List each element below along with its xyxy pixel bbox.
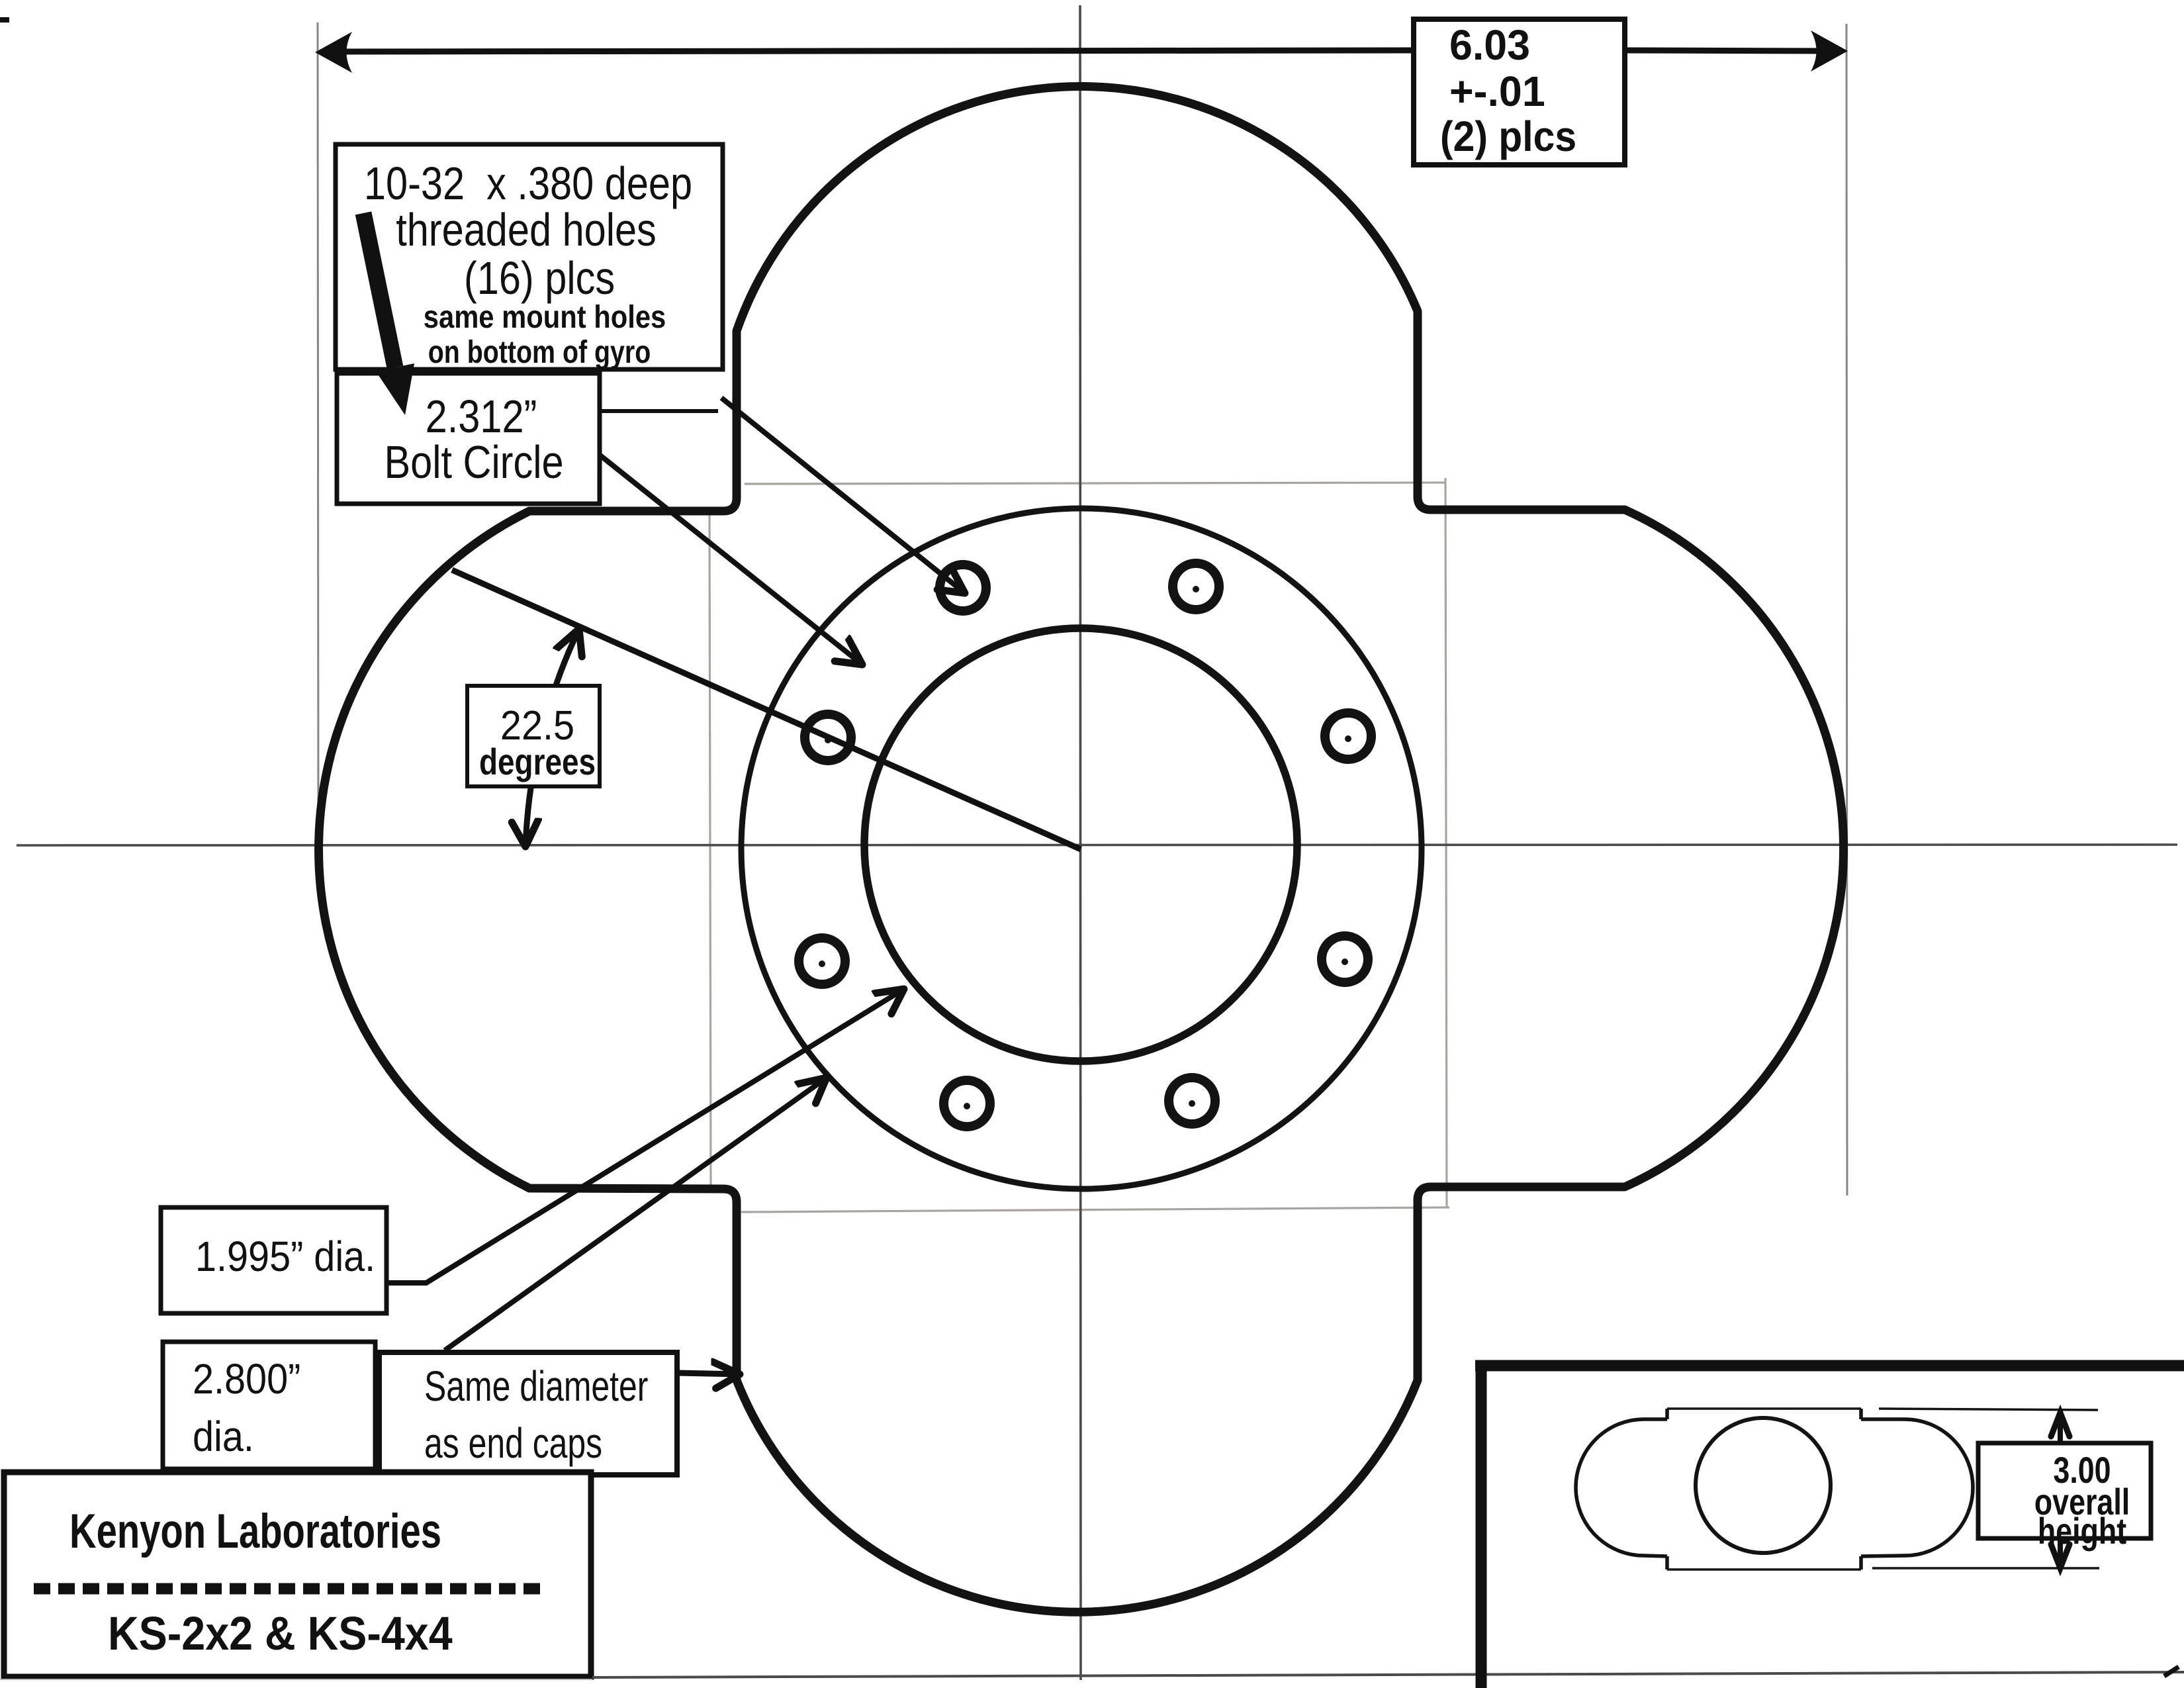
svg-text:same mount holes: same mount holes <box>424 299 666 334</box>
svg-text:2.800”: 2.800” <box>193 1355 300 1402</box>
svg-text:Kenyon Laboratories: Kenyon Laboratories <box>69 1504 441 1558</box>
svg-text:Same diameter: Same diameter <box>424 1363 648 1410</box>
svg-text:10-32 x .380 deep: 10-32 x .380 deep <box>364 157 692 209</box>
svg-text:(2) plcs: (2) plcs <box>1440 113 1576 161</box>
svg-text:6.03: 6.03 <box>1449 22 1530 69</box>
svg-text:KS-2x2 & KS-4x4: KS-2x2 & KS-4x4 <box>108 1608 453 1660</box>
svg-text:Bolt Circle: Bolt Circle <box>384 436 563 488</box>
svg-text:degrees: degrees <box>479 741 596 782</box>
svg-text:1.995” dia.: 1.995” dia. <box>195 1233 375 1280</box>
svg-text:threaded holes: threaded holes <box>396 203 657 256</box>
svg-text:(16) plcs: (16) plcs <box>464 252 615 304</box>
svg-text:dia.: dia. <box>193 1413 254 1460</box>
svg-text:+-.01: +-.01 <box>1449 68 1545 115</box>
svg-text:height: height <box>2038 1510 2126 1552</box>
svg-text:as end caps: as end caps <box>424 1420 602 1467</box>
svg-text:2.312”: 2.312” <box>426 390 537 442</box>
svg-text:on bottom of gyro: on bottom of gyro <box>428 334 651 370</box>
